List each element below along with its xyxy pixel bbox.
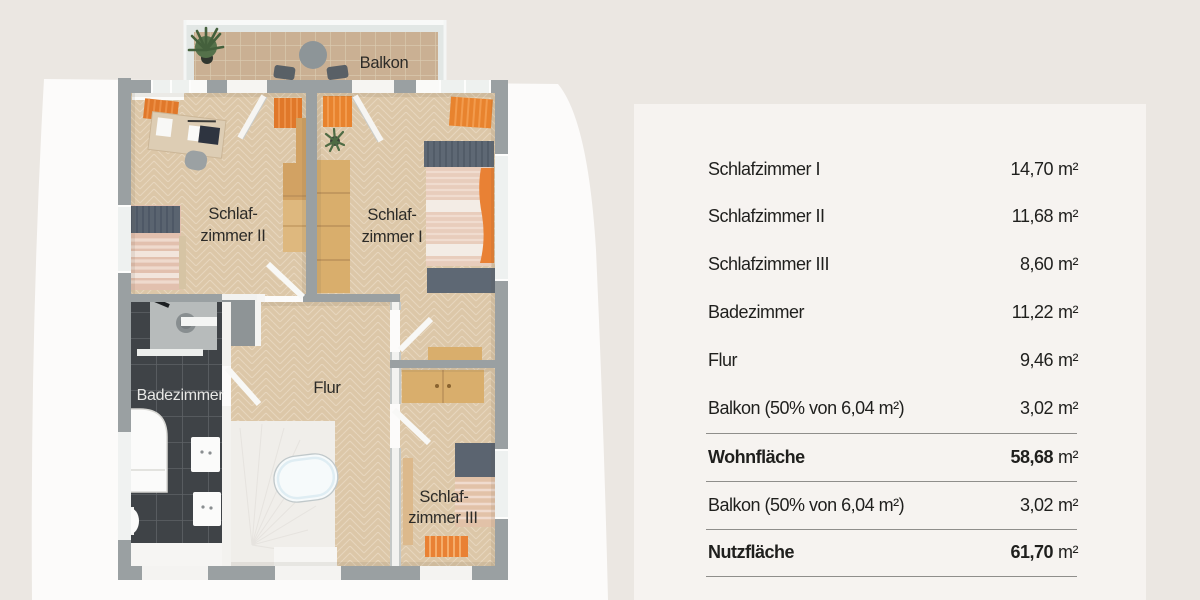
svg-text:zimmer II: zimmer II bbox=[200, 227, 265, 245]
svg-text:Schlaf-: Schlaf- bbox=[419, 488, 468, 506]
svg-text:Balkon: Balkon bbox=[360, 54, 409, 72]
svg-text:Badezimmer: Badezimmer bbox=[137, 387, 225, 404]
svg-text:Schlaf-: Schlaf- bbox=[208, 205, 257, 223]
svg-text:Flur: Flur bbox=[313, 379, 341, 397]
svg-text:zimmer I: zimmer I bbox=[362, 228, 423, 246]
svg-text:Schlaf-: Schlaf- bbox=[367, 206, 416, 224]
svg-text:zimmer III: zimmer III bbox=[408, 509, 477, 527]
